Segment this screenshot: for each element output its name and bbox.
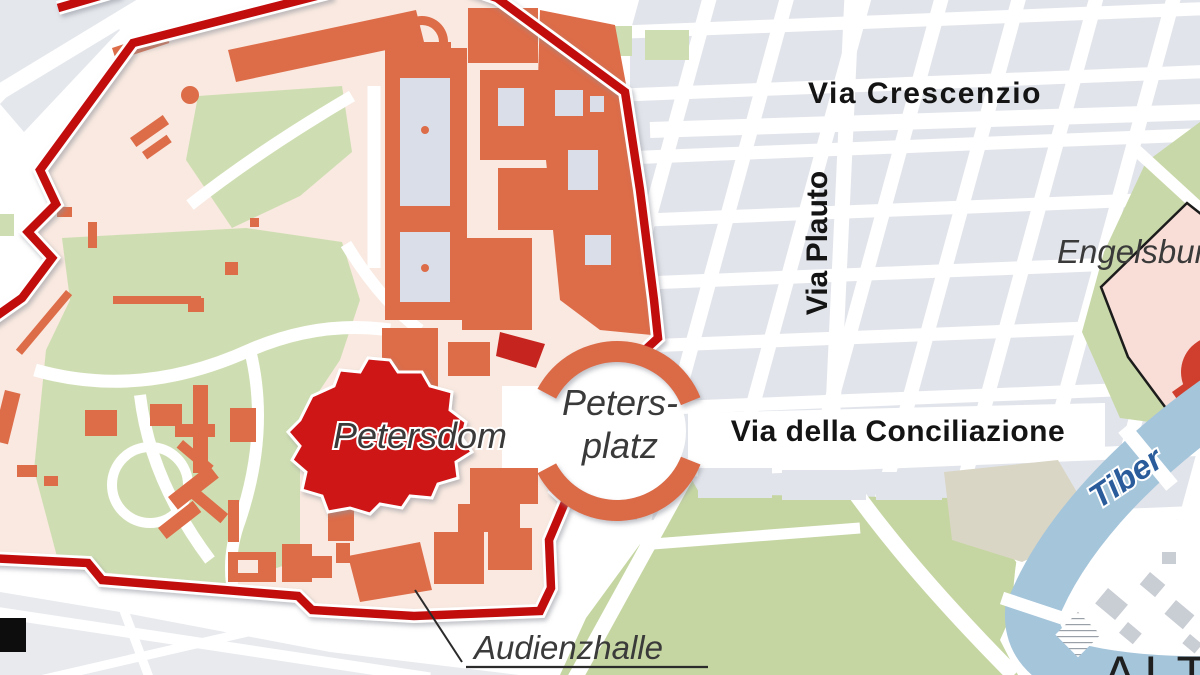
engelsburg-label: Engelsburg bbox=[1057, 233, 1200, 270]
map-canvas: Via Crescenzio Via Plauto Via della Conc… bbox=[0, 0, 1200, 675]
via-della-conciliazione-label: Via della Conciliazione bbox=[731, 415, 1065, 448]
petersdom-label: Petersdom bbox=[333, 415, 507, 456]
via-plauto-label: Via Plauto bbox=[801, 171, 834, 316]
audienzhalle-label: Audienzhalle bbox=[472, 629, 663, 666]
via-crescenzio-label: Via Crescenzio bbox=[808, 77, 1042, 110]
petersplatz-label-line1: Peters- bbox=[562, 382, 678, 423]
petersplatz-label-line2: platz bbox=[581, 425, 658, 466]
borgo-blocks bbox=[698, 468, 942, 500]
legend-box bbox=[0, 618, 26, 652]
vatican-map: Via Crescenzio Via Plauto Via della Conc… bbox=[0, 0, 1200, 675]
altstadt-label: ALTSTADT bbox=[1103, 646, 1200, 675]
